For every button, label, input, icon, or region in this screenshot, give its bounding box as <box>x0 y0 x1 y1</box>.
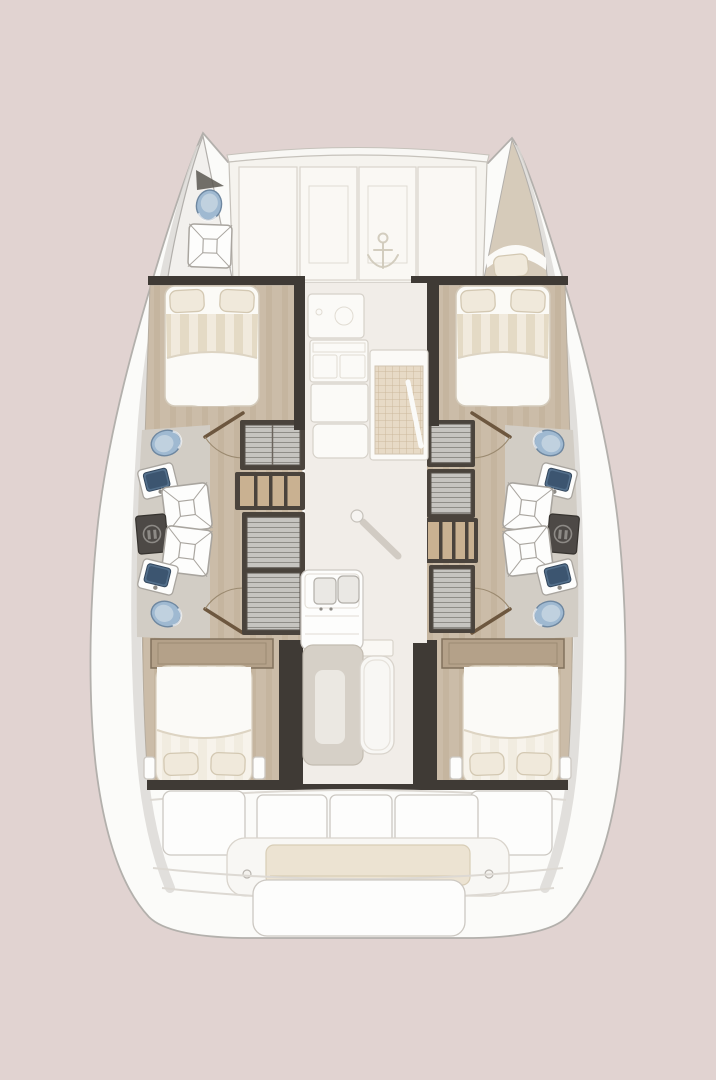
deck-panel <box>418 167 476 279</box>
saloon <box>301 283 428 784</box>
grid-mat-unit <box>370 350 428 460</box>
port-wardrobes <box>235 420 305 635</box>
galley-counter <box>313 424 368 458</box>
foredeck <box>227 148 489 284</box>
catamaran-floorplan <box>0 0 716 1080</box>
galley-stove <box>310 340 368 382</box>
galley-counter-sink <box>308 294 364 338</box>
stern-locker <box>395 795 478 843</box>
saloon-table <box>303 645 363 765</box>
starboard-wardrobes <box>424 420 478 633</box>
floorplan-canvas <box>0 0 716 1080</box>
galley-counter <box>311 384 368 422</box>
shower <box>188 224 232 268</box>
pillow <box>493 253 529 278</box>
saloon-bench <box>360 656 394 754</box>
stern-locker <box>257 795 327 843</box>
stern-locker <box>330 795 392 843</box>
swim-platform <box>253 880 465 936</box>
deck-panel <box>239 167 297 279</box>
